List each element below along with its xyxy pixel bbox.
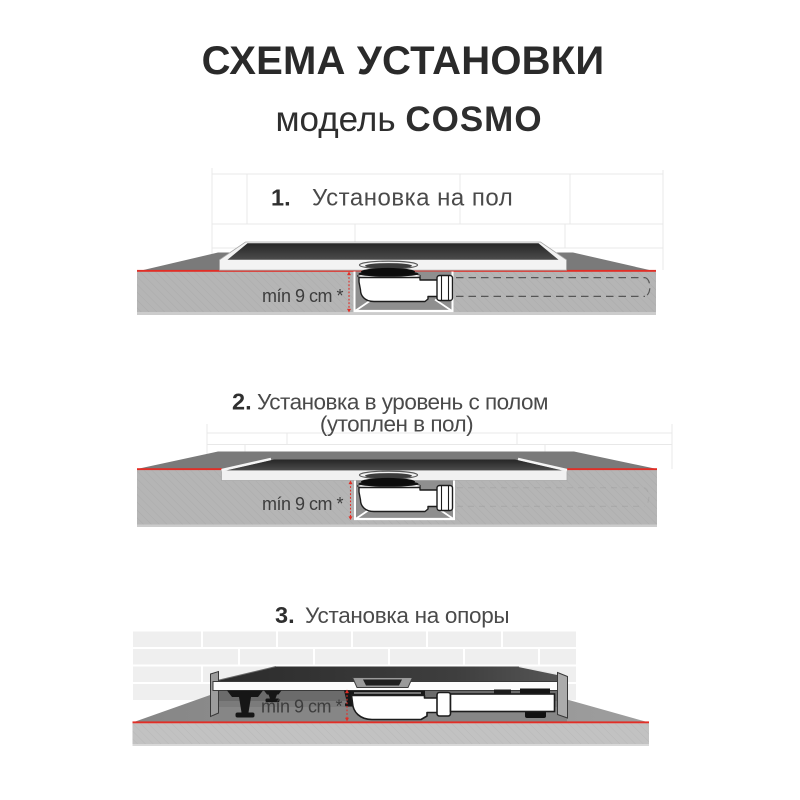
svg-text:Установка на опоры: Установка на опоры — [305, 603, 509, 628]
svg-text:модель COSMO: модель COSMO — [275, 100, 542, 139]
svg-text:(утоплен в пол): (утоплен в пол) — [320, 412, 473, 437]
svg-text:mín 9 cm *: mín 9 cm * — [262, 286, 344, 306]
svg-text:mín 9 cm *: mín 9 cm * — [261, 697, 343, 717]
svg-text:3.: 3. — [275, 602, 295, 628]
svg-text:2.: 2. — [232, 389, 252, 415]
svg-text:mín 9 cm *: mín 9 cm * — [262, 494, 344, 514]
svg-text:1.: 1. — [271, 185, 291, 211]
svg-text:СХЕМА УСТАНОВКИ: СХЕМА УСТАНОВКИ — [202, 39, 605, 83]
svg-text:Установка на пол: Установка на пол — [312, 185, 513, 212]
